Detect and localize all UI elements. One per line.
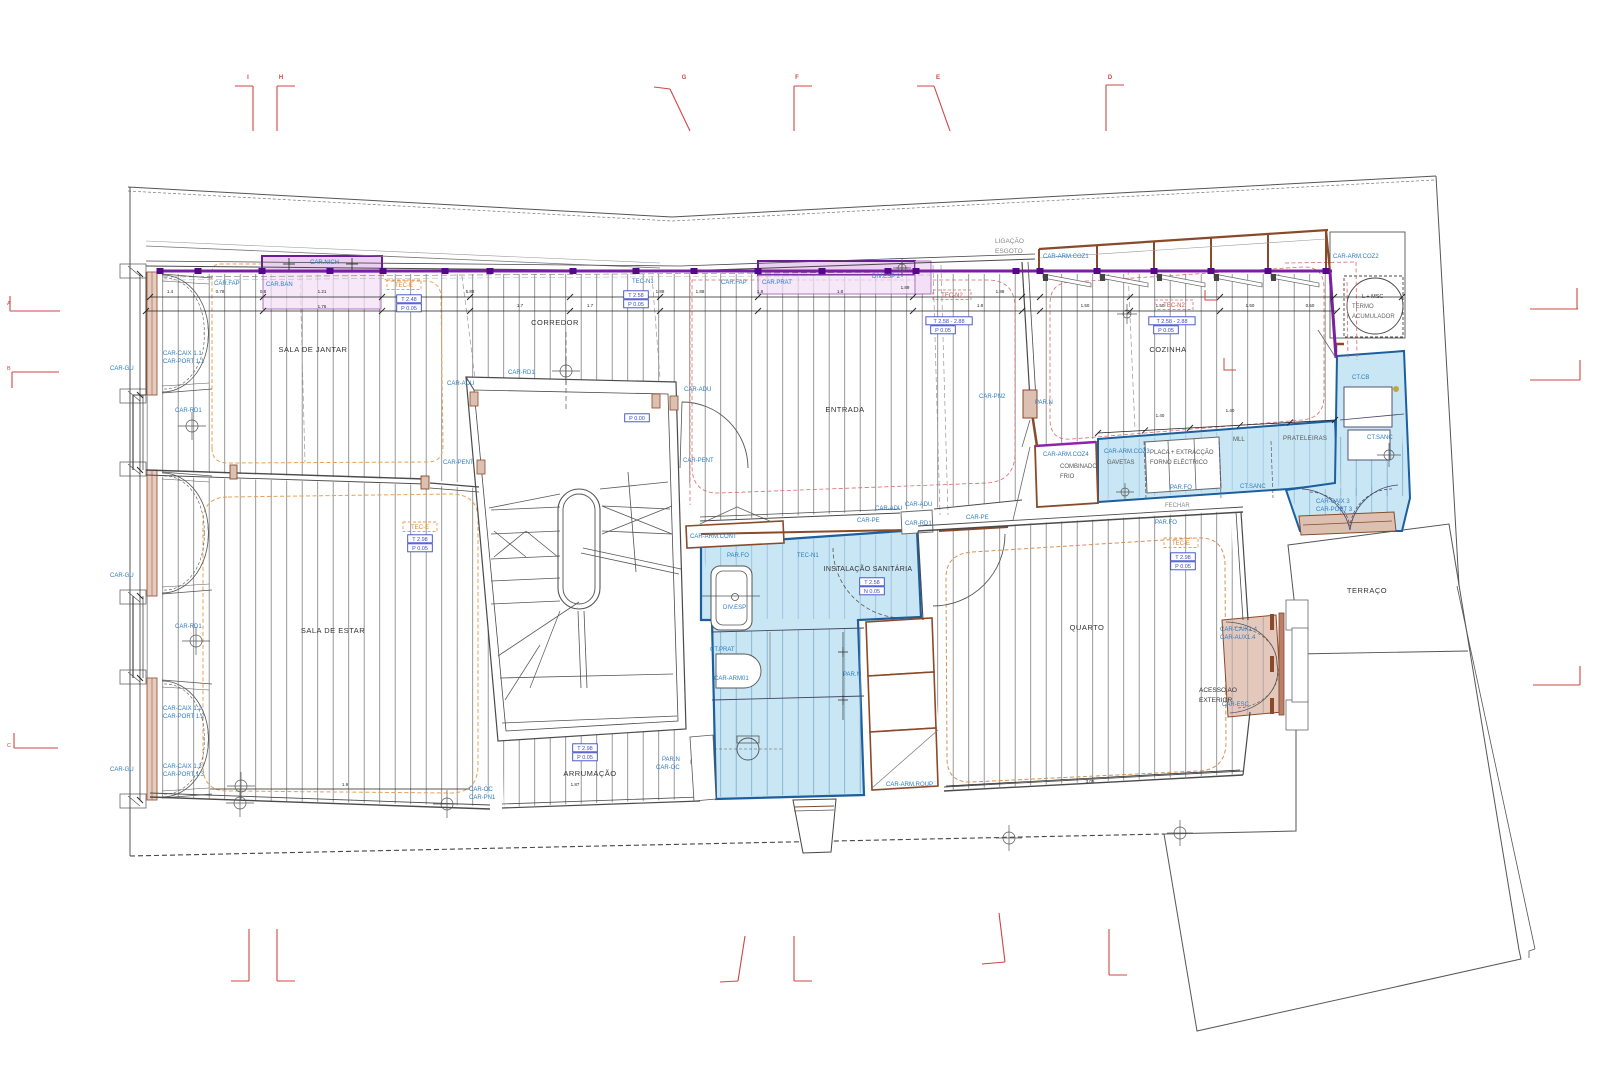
svg-text:CAR-RD1: CAR-RD1	[175, 624, 202, 630]
svg-text:0.8: 0.8	[260, 289, 267, 294]
svg-text:T 2.58 - 2.88: T 2.58 - 2.88	[1156, 319, 1187, 325]
svg-text:CAR.FAP: CAR.FAP	[721, 280, 747, 286]
svg-text:CAR-ADU: CAR-ADU	[447, 381, 474, 387]
svg-text:COMBINADO: COMBINADO	[1060, 464, 1097, 470]
svg-text:CT.SANC: CT.SANC	[1240, 484, 1266, 490]
svg-text:1.88: 1.88	[696, 289, 705, 294]
svg-text:P 0.05: P 0.05	[412, 546, 428, 552]
svg-text:CAR.BAN: CAR.BAN	[266, 282, 293, 288]
svg-text:CAR-OC: CAR-OC	[656, 765, 680, 771]
svg-text:TERMO: TERMO	[1352, 304, 1374, 310]
svg-text:CAR-PE: CAR-PE	[857, 518, 880, 524]
svg-text:PAR.N: PAR.N	[843, 672, 861, 678]
svg-text:INSTALAÇÃO SANITÁRIA: INSTALAÇÃO SANITÁRIA	[824, 564, 913, 573]
svg-text:TEC-N1: TEC-N1	[797, 553, 819, 559]
svg-text:C: C	[7, 743, 11, 749]
svg-text:TERRAÇO: TERRAÇO	[1347, 586, 1387, 595]
svg-text:ACUMULADOR: ACUMULADOR	[1352, 314, 1395, 320]
svg-text:P 0.05: P 0.05	[577, 755, 593, 761]
svg-text:3.05: 3.05	[1086, 779, 1095, 784]
svg-text:PAR.FO: PAR.FO	[1170, 485, 1192, 491]
svg-text:PAR.FO: PAR.FO	[1155, 520, 1177, 526]
svg-text:P 0.00: P 0.00	[629, 416, 645, 422]
svg-text:CAR.PRAT: CAR.PRAT	[762, 280, 792, 286]
svg-text:CAR-RD1: CAR-RD1	[508, 370, 535, 376]
svg-text:1.7: 1.7	[587, 303, 594, 308]
svg-text:CAR-CAIX1.4: CAR-CAIX1.4	[1220, 627, 1258, 633]
svg-text:DIV.ESP 2: DIV.ESP 2	[872, 274, 901, 280]
svg-text:CAR-ARM.CONT: CAR-ARM.CONT	[690, 534, 737, 540]
svg-text:CAR-ESC: CAR-ESC	[1222, 702, 1250, 708]
svg-text:DIV.ESP: DIV.ESP	[723, 605, 746, 611]
svg-text:1.8: 1.8	[757, 289, 764, 294]
svg-text:TEC-E: TEC-E	[395, 283, 413, 289]
svg-text:CAR-ADU: CAR-ADU	[684, 387, 711, 393]
svg-text:PLACA + EXTRACÇÃO: PLACA + EXTRACÇÃO	[1150, 449, 1214, 456]
svg-text:FECHAR: FECHAR	[1165, 503, 1190, 509]
svg-text:CAR-ARM.COZ3: CAR-ARM.COZ3	[1104, 449, 1150, 455]
svg-text:CAR-ARM01: CAR-ARM01	[714, 676, 749, 682]
svg-text:CAR.FAP: CAR.FAP	[214, 281, 240, 287]
svg-text:CT.SANC: CT.SANC	[1367, 435, 1393, 441]
svg-text:LIGAÇÃO: LIGAÇÃO	[995, 236, 1024, 245]
svg-text:P 0.05: P 0.05	[935, 328, 951, 334]
svg-text:CAR-ARM.COZ2: CAR-ARM.COZ2	[1333, 254, 1379, 260]
svg-text:PAR.N: PAR.N	[1035, 400, 1053, 406]
svg-text:1.8: 1.8	[837, 289, 844, 294]
svg-text:CAR-OC: CAR-OC	[469, 787, 493, 793]
svg-text:CAR-GU: CAR-GU	[110, 366, 134, 372]
svg-text:P 0.05: P 0.05	[1175, 564, 1191, 570]
svg-text:G: G	[682, 75, 687, 81]
svg-text:CAR-ADU: CAR-ADU	[905, 502, 932, 508]
svg-text:P 0.05: P 0.05	[1158, 328, 1174, 334]
svg-text:1.50: 1.50	[1081, 303, 1090, 308]
svg-text:CAR-PE: CAR-PE	[966, 515, 989, 521]
svg-text:CAR-PORT 1.1: CAR-PORT 1.1	[163, 359, 205, 365]
svg-text:T 2.98: T 2.98	[577, 746, 593, 752]
svg-text:CAR-PENT: CAR-PENT	[443, 460, 474, 466]
svg-text:1.9: 1.9	[342, 782, 349, 787]
svg-text:D: D	[1108, 75, 1113, 81]
svg-text:T 2.58: T 2.58	[864, 580, 880, 586]
svg-text:H: H	[279, 75, 283, 81]
svg-text:CAR-GU: CAR-GU	[110, 767, 134, 773]
svg-text:SALA DE JANTAR: SALA DE JANTAR	[279, 345, 348, 354]
svg-text:ENTRADA: ENTRADA	[825, 405, 864, 414]
svg-text:CAR-AUX1.4: CAR-AUX1.4	[1220, 635, 1256, 641]
svg-text:0.50: 0.50	[1306, 303, 1315, 308]
svg-text:CAR-CAIX 1.3: CAR-CAIX 1.3	[163, 764, 202, 770]
svg-text:TEC-N1: TEC-N1	[632, 279, 654, 285]
svg-text:CAR-ARM.COZ1: CAR-ARM.COZ1	[1043, 254, 1089, 260]
svg-text:5.88: 5.88	[466, 289, 475, 294]
svg-text:1.8: 1.8	[977, 303, 984, 308]
svg-text:PAR.N: PAR.N	[662, 757, 680, 763]
svg-text:N 0.05: N 0.05	[864, 589, 880, 595]
svg-text:CT.PRAT: CT.PRAT	[710, 647, 735, 653]
svg-text:1.88: 1.88	[656, 289, 665, 294]
svg-text:T 2.48: T 2.48	[401, 297, 417, 303]
svg-text:TEC-E: TEC-E	[411, 525, 429, 531]
svg-text:TEC-N2: TEC-N2	[1163, 303, 1185, 309]
svg-text:CAR-PENT: CAR-PENT	[683, 458, 714, 464]
svg-text:1.88: 1.88	[996, 289, 1005, 294]
svg-text:CAR-GU: CAR-GU	[110, 573, 134, 579]
svg-text:P 0.05: P 0.05	[401, 306, 417, 312]
svg-text:1.40: 1.40	[1156, 413, 1165, 418]
svg-text:T 2.98: T 2.98	[412, 537, 428, 543]
svg-text:E: E	[936, 75, 940, 81]
svg-text:CAR-PN2: CAR-PN2	[979, 394, 1006, 400]
svg-text:COZINHA: COZINHA	[1149, 345, 1186, 354]
svg-text:0.78: 0.78	[216, 289, 225, 294]
svg-text:1.89: 1.89	[901, 285, 910, 290]
svg-text:B: B	[7, 366, 11, 372]
svg-text:1.4: 1.4	[167, 289, 174, 294]
svg-text:CAR-ADU: CAR-ADU	[875, 506, 902, 512]
svg-text:CAR-PN1: CAR-PN1	[469, 795, 496, 801]
svg-text:PRATELEIRAS: PRATELEIRAS	[1283, 436, 1327, 442]
svg-text:TEC-N2: TEC-N2	[941, 293, 963, 299]
svg-text:MLL: MLL	[1233, 437, 1245, 443]
svg-text:ACESSO AO: ACESSO AO	[1199, 687, 1237, 694]
svg-text:F: F	[795, 75, 799, 81]
svg-text:TEC-E: TEC-E	[1172, 541, 1190, 547]
svg-text:CAR-CAIX 3: CAR-CAIX 3	[1316, 499, 1350, 505]
svg-text:PAR.FO: PAR.FO	[727, 553, 749, 559]
svg-text:CAR-ARM.COZ4: CAR-ARM.COZ4	[1043, 452, 1089, 458]
svg-text:ESGOTO: ESGOTO	[995, 248, 1023, 255]
svg-text:SALA DE ESTAR: SALA DE ESTAR	[301, 626, 365, 635]
svg-text:1.50: 1.50	[1246, 303, 1255, 308]
svg-text:1.76: 1.76	[318, 304, 327, 309]
svg-text:T 2.58 - 2.88: T 2.58 - 2.88	[933, 319, 964, 325]
svg-text:L + MSC: L + MSC	[1362, 294, 1383, 300]
svg-text:P 0.05: P 0.05	[628, 302, 644, 308]
svg-text:CAR-RD1: CAR-RD1	[905, 521, 932, 527]
svg-text:CORREDOR: CORREDOR	[531, 318, 579, 327]
svg-text:1.40: 1.40	[1226, 408, 1235, 413]
svg-text:1.21: 1.21	[318, 289, 327, 294]
svg-text:CAR-CAIX 1.2: CAR-CAIX 1.2	[163, 706, 202, 712]
svg-text:GAVETAS: GAVETAS	[1107, 460, 1134, 466]
svg-text:ARRUMAÇÃO: ARRUMAÇÃO	[563, 769, 616, 778]
svg-text:T 2.98: T 2.98	[1175, 555, 1191, 561]
svg-text:CAR-PORT 1.3: CAR-PORT 1.3	[163, 772, 205, 778]
svg-text:1.87: 1.87	[571, 782, 580, 787]
svg-text:CAR-PORT 1.2: CAR-PORT 1.2	[163, 714, 205, 720]
svg-text:FRIO: FRIO	[1060, 474, 1075, 480]
svg-text:CT.CB: CT.CB	[1352, 375, 1369, 381]
svg-text:CAR-PORT 3: CAR-PORT 3	[1316, 507, 1353, 513]
svg-text:CAR-CAIX 1.1: CAR-CAIX 1.1	[163, 351, 202, 357]
svg-text:CAR-RD1: CAR-RD1	[175, 408, 202, 414]
svg-text:FORNO ELÉCTRICO: FORNO ELÉCTRICO	[1150, 459, 1208, 466]
svg-text:CAR.NICH: CAR.NICH	[310, 260, 339, 266]
svg-text:1.7: 1.7	[517, 303, 524, 308]
svg-text:T 2.58: T 2.58	[628, 293, 644, 299]
svg-text:CAR-ARM.ROUP: CAR-ARM.ROUP	[886, 782, 933, 788]
svg-text:QUARTO: QUARTO	[1070, 623, 1105, 632]
